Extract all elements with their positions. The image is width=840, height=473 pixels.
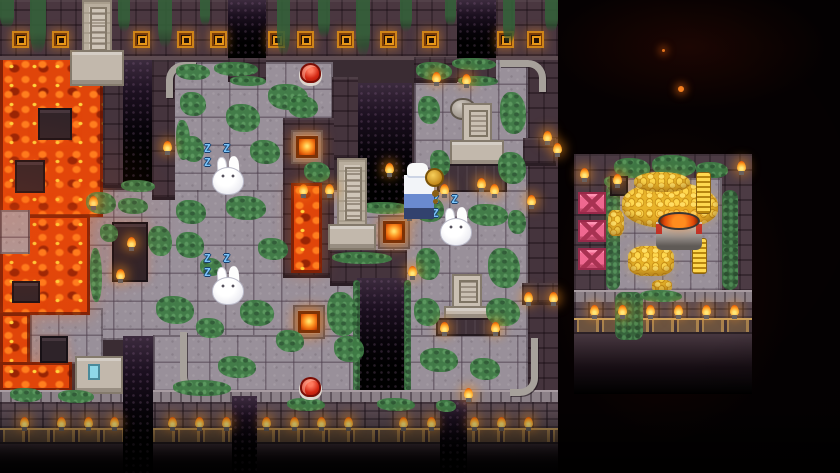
moss [176,232,204,258]
moss [10,388,42,402]
pillar-base [328,224,376,250]
lava-rock [12,281,40,303]
pink-x-block[interactable] [578,192,606,214]
scattered-coins [628,246,674,276]
moss [226,196,266,220]
carved-pedestal [462,103,492,143]
glowing-switch-tile[interactable] [383,221,405,243]
moss [436,400,456,412]
sleeping-rabbit-monster[interactable] [210,267,244,305]
lava-rock [40,336,68,363]
torch [462,74,472,88]
red-mushroom[interactable] [300,377,321,397]
moss [468,204,508,226]
moss [377,398,415,411]
torch [84,417,94,431]
moss [176,120,190,160]
moss [121,180,155,192]
orn [52,31,69,48]
metal-rail [500,60,546,92]
torch [470,417,480,431]
torch [497,417,507,431]
torch [613,174,623,188]
pillar-base [70,50,124,86]
torch [646,305,656,319]
moss [148,226,172,256]
stone-walkway [0,210,30,254]
torch [325,184,335,198]
carved-pillar [82,0,112,56]
moss [498,152,526,184]
moss [214,62,258,76]
torch [127,237,137,251]
lava-pool [0,362,72,391]
torch [317,417,327,431]
scattered-coins [608,210,624,236]
hangvine [318,0,330,38]
torch [299,184,309,198]
orn [527,31,544,48]
vinecol [606,184,620,290]
moss [100,224,118,242]
metal-rail [510,338,538,396]
carved-pedestal [452,274,482,308]
moss [500,92,526,134]
moss [470,358,500,380]
torch [524,417,534,431]
moss [156,296,194,324]
torch [590,305,600,319]
torch [737,161,747,175]
wallface [574,302,752,318]
moss [327,292,357,336]
torch [89,196,99,210]
orn [133,31,150,48]
torch [618,305,628,319]
hangvine [30,0,46,54]
torch [57,417,67,431]
orn [380,31,397,48]
coin-stack [696,172,711,214]
hangvine [118,0,130,32]
moss [640,290,682,302]
torch [110,417,120,431]
torch [344,417,354,431]
ember-particle [662,49,665,52]
hangvine [445,0,456,26]
torch [730,305,740,319]
lava-rock [15,160,45,193]
orn [422,31,439,48]
hangvine [545,0,558,32]
torch [195,417,205,431]
torch [490,184,500,198]
moss [118,198,148,214]
torch [524,292,534,306]
hangvine [200,0,210,26]
moss [176,64,210,80]
pedstep [450,140,504,166]
red-mushroom[interactable] [300,63,321,83]
chasm [357,278,407,395]
sleep-indicator: Z Z Z [432,193,478,207]
ember-particle [678,86,684,92]
chasm [232,396,257,473]
chasm [228,0,266,58]
vinecol [722,190,738,290]
torch [408,266,418,280]
fade [0,444,558,473]
vinecol [404,280,411,392]
hangvine [0,0,14,28]
moss [240,300,274,326]
moss [360,202,410,214]
moss [226,104,260,132]
moss [90,248,102,302]
torch [399,417,409,431]
moss [508,210,526,234]
torch [262,417,272,431]
orn [337,31,354,48]
moss [218,356,256,378]
moss [180,92,206,116]
moss [250,140,280,164]
torch [222,417,232,431]
altar-glyph [88,364,100,380]
torch [290,417,300,431]
gold-pile[interactable] [634,172,690,192]
torch [427,417,437,431]
hangvine [400,0,412,32]
moss [230,76,266,86]
torch [432,72,442,86]
goldtrim [574,318,752,334]
moss [420,348,458,372]
hangvine [356,0,370,57]
orn [297,31,314,48]
moss [276,330,304,352]
moss [173,380,231,396]
torch [477,178,487,192]
orn [210,31,227,48]
moss [452,58,496,70]
torch [116,269,126,283]
moss [418,96,440,124]
torch [674,305,684,319]
carved-pillar [337,158,367,228]
moss [414,298,440,326]
moss [288,96,318,118]
fade [574,334,752,394]
moss [334,336,364,362]
orn [177,31,194,48]
lava-rock [38,108,72,140]
orn [12,31,29,48]
moss [176,200,206,224]
sleep-indicator: Z Z Z [204,252,250,266]
moss [58,390,94,403]
game-viewport: Z Z ZZ Z ZZ Z Z [0,0,840,473]
torch [163,141,173,155]
hangvine [503,0,515,44]
moss [304,162,330,182]
sleeping-rabbit-monster[interactable] [210,157,244,195]
torch [20,417,30,431]
lava-cauldron[interactable] [656,212,702,250]
torch [580,168,590,182]
chasm [123,336,153,473]
torch [702,305,712,319]
chasm [457,0,496,58]
glowing-switch-tile[interactable] [298,311,320,333]
wall [332,77,358,160]
hangvine [158,0,172,48]
sleep-indicator: Z Z Z [204,142,250,156]
chasm [123,60,153,186]
torch [464,388,474,402]
moss [196,318,224,338]
moss [488,248,520,288]
torch [440,322,450,336]
torch [168,417,178,431]
moss [287,398,325,411]
torch [527,195,537,209]
pink-x-block[interactable] [578,220,606,242]
pink-x-block[interactable] [578,248,606,270]
glowing-switch-tile[interactable] [296,136,318,158]
sleeping-rabbit-monster[interactable] [438,208,472,246]
moss [258,238,288,260]
moss [416,248,440,280]
player-character[interactable] [404,162,434,224]
hangvine [277,0,290,56]
moss [332,252,392,264]
torch [385,163,395,177]
torch [491,322,501,336]
